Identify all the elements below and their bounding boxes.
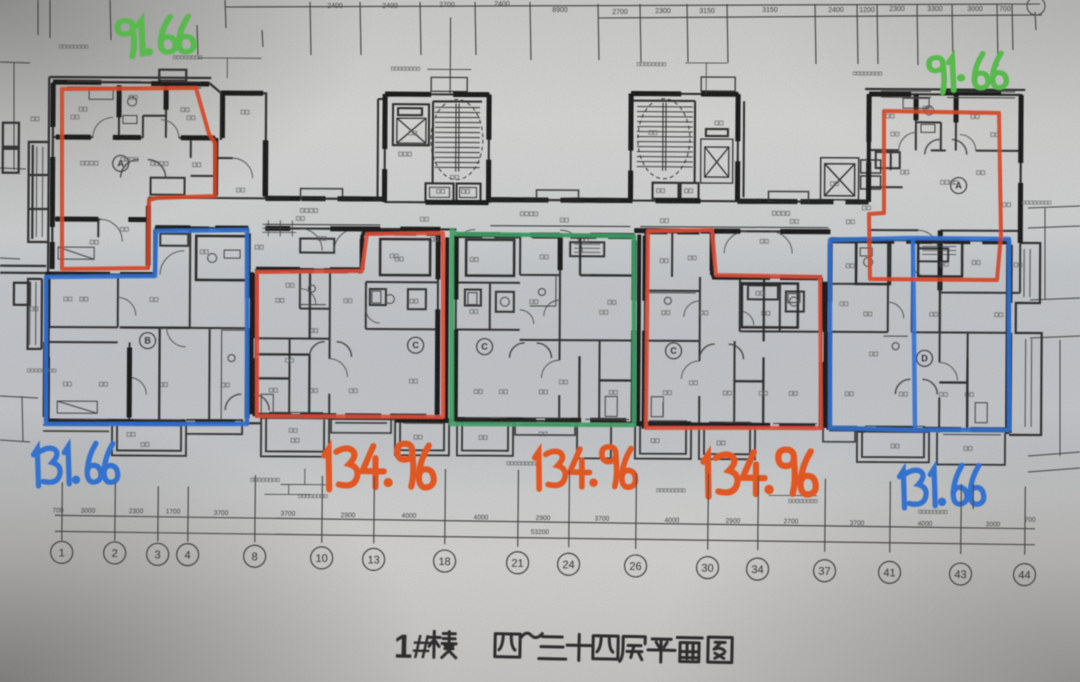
svg-text:30: 30 [701,563,713,575]
svg-text:2700: 2700 [784,518,799,525]
svg-text:D: D [921,353,928,363]
svg-text:2: 2 [112,548,118,560]
svg-text:26: 26 [629,561,641,573]
svg-text:3000: 3000 [81,508,96,515]
svg-text:C: C [670,346,677,356]
svg-text:2900: 2900 [726,518,741,525]
svg-text:C: C [412,340,419,350]
svg-text:2400: 2400 [828,7,844,14]
svg-text:1700: 1700 [166,508,181,515]
svg-text:3700: 3700 [214,510,229,517]
svg-text:24: 24 [562,559,574,571]
svg-text:3150: 3150 [699,8,715,15]
svg-text:B: B [144,336,151,346]
svg-text:44: 44 [1018,570,1030,582]
svg-text:10: 10 [315,553,327,565]
svg-text:2400: 2400 [382,3,398,10]
svg-text:8900: 8900 [552,7,568,14]
svg-text:4: 4 [185,550,191,562]
svg-text:3000: 3000 [986,521,1001,528]
svg-text:3: 3 [155,549,161,561]
svg-text:21: 21 [511,558,523,570]
svg-text:2300: 2300 [889,6,905,13]
svg-text:8: 8 [252,551,258,563]
svg-text:700: 700 [53,507,64,514]
svg-text:C: C [481,342,488,352]
svg-text:2400: 2400 [327,3,343,10]
svg-text:34: 34 [751,564,763,576]
svg-text:A: A [955,181,962,191]
svg-text:37: 37 [818,566,830,578]
svg-text:1: 1 [59,547,65,559]
svg-text:41: 41 [883,567,895,579]
svg-text:53200: 53200 [531,529,550,536]
svg-text:4000: 4000 [402,513,417,520]
svg-text:2700: 2700 [439,2,455,9]
svg-text:3300: 3300 [927,6,943,13]
svg-text:3000: 3000 [967,6,983,13]
svg-text:18: 18 [438,556,450,568]
svg-text:2700: 2700 [612,9,628,16]
svg-text:1200: 1200 [859,7,875,14]
svg-text:4000: 4000 [665,517,680,524]
svg-text:700: 700 [999,6,1011,13]
svg-text:13: 13 [367,554,379,566]
svg-text:2900: 2900 [536,515,551,522]
svg-text:2900: 2900 [341,512,356,519]
svg-text:700: 700 [1024,517,1035,524]
svg-text:3150: 3150 [762,7,778,14]
svg-text:3700: 3700 [850,520,865,527]
svg-text:43: 43 [954,569,966,581]
svg-text:2300: 2300 [129,508,144,515]
svg-text:4000: 4000 [474,514,489,521]
svg-text:3700: 3700 [595,516,610,523]
svg-text:1#: 1# [394,628,431,666]
svg-text:2400: 2400 [494,1,510,8]
svg-text:3700: 3700 [281,511,296,518]
svg-text:4000: 4000 [918,521,933,528]
svg-text:2300: 2300 [655,8,671,15]
